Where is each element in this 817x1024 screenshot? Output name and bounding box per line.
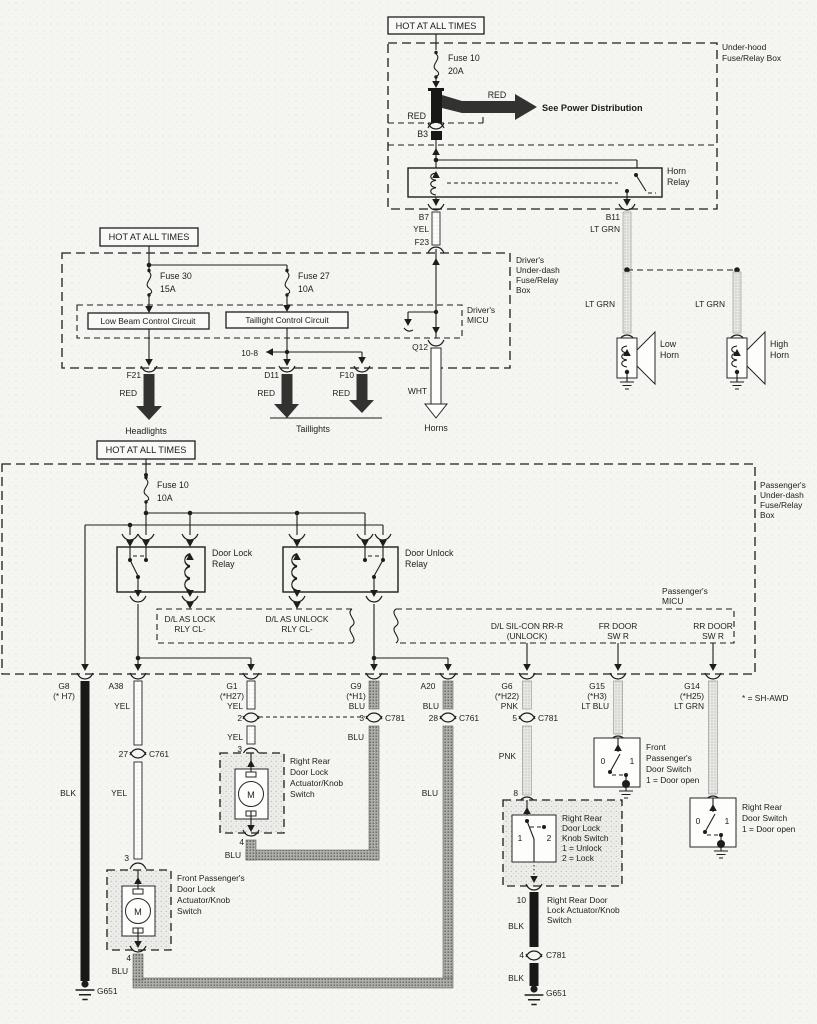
passenger-box-label-4: Box (760, 510, 775, 520)
f23-label: F23 (415, 237, 430, 247)
a20-blu-wire-2 (443, 726, 453, 978)
g14-color: LT GRN (674, 701, 704, 711)
motor-letter-front: M (134, 907, 142, 917)
passenger-box-label-2: Under-dash (760, 490, 804, 500)
g1-yel-wire-1 (247, 681, 255, 709)
fp-sw-label-3: Door Switch (646, 764, 691, 774)
blk-color-2: BLK (508, 973, 524, 983)
d11-color: RED (257, 388, 275, 398)
blk-wire-1 (530, 892, 539, 947)
fuse-27-label: Fuse 27 (298, 271, 330, 281)
driver-box-label-4: Box (516, 285, 531, 295)
fp-act-label-2: Door Lock (177, 884, 216, 894)
g15-color: LT BLU (581, 701, 609, 711)
micu-unlock-label-2: RLY CL- (281, 624, 313, 634)
headlights-label: Headlights (125, 426, 167, 436)
micu-lock-label-1: D/L AS LOCK (165, 614, 216, 624)
micu-rrdoor-label-2: SW R (702, 631, 724, 641)
g8-blk-wire (81, 681, 90, 981)
ref-10-8-label: 10-8 (241, 348, 258, 358)
knob-label-2: Door Lock (562, 823, 601, 833)
fp-sw-label-2: Passenger's (646, 753, 692, 763)
q12-label: Q12 (412, 342, 428, 352)
fp-sw-label-1: Front (646, 742, 666, 752)
rr-sw-pos1: 1 (725, 816, 730, 826)
a38-pin3: 3 (124, 853, 129, 863)
fp-sw-pos0: 0 (601, 756, 606, 766)
fp-sw-label-4: 1 = Door open (646, 775, 700, 785)
fuse-30-label: Fuse 30 (160, 271, 192, 281)
f10-color: RED (332, 388, 350, 398)
f21-label: F21 (127, 370, 142, 380)
b11-label: B11 (606, 212, 621, 222)
door-unlock-relay-label-1: Door Unlock (405, 548, 454, 558)
knob-label-3: Knob Switch (562, 833, 609, 843)
g8-name-2: (* H7) (53, 691, 75, 701)
passenger-box-label-3: Fuse/Relay (760, 500, 803, 510)
g14-name-2: (*H25) (680, 691, 704, 701)
c781-label: C781 (546, 950, 566, 960)
g6-pin5: 5 (512, 713, 517, 723)
g6-color-1: PNK (501, 701, 519, 711)
micu-frdoor-label-2: SW R (607, 631, 629, 641)
high-horn-wire-color: LT GRN (695, 299, 725, 309)
micu-rrdoor-label-1: RR DOOR (693, 621, 733, 631)
driver-micu-label-2: MICU (467, 315, 488, 325)
hot-label-1: HOT AT ALL TIMES (396, 21, 477, 31)
rr-sw-label-1: Right Rear (742, 802, 782, 812)
see-power-distribution: See Power Distribution (542, 103, 643, 113)
b3-label: B3 (417, 129, 428, 139)
passenger-micu-label-1: Passenger's (662, 586, 708, 596)
a20-elbow-stub (133, 954, 143, 980)
g9-blu-wire-1 (369, 681, 379, 709)
low-horn-wire-color: LT GRN (585, 299, 615, 309)
rr-act-label-1: Right Rear (290, 756, 330, 766)
pin10-label: 10 (517, 895, 527, 905)
fuse-10b-label: Fuse 10 (157, 480, 189, 490)
g651-label-left: G651 (97, 986, 118, 996)
rr-act2-label-1: Right Rear Door (547, 895, 608, 905)
g6-name-2: (*H22) (495, 691, 519, 701)
taillight-label: Taillight Control Circuit (245, 315, 329, 325)
motor-letter-rear: M (247, 790, 255, 800)
g8-name: G8 (58, 681, 70, 691)
taillights-label: Taillights (296, 424, 330, 434)
d11-label: D11 (264, 370, 279, 380)
g9-elbow-wire (246, 850, 379, 860)
g9-pin3: 3 (359, 713, 364, 723)
high-horn-wire (733, 272, 741, 333)
low-beam-label: Low Beam Control Circuit (101, 316, 197, 326)
g6-pin8: 8 (513, 788, 518, 798)
a20-elbow-wire (133, 978, 453, 988)
red-label-main: RED (407, 111, 426, 121)
fp-sw-pos1: 1 (630, 756, 635, 766)
fuse-27-amp: 10A (298, 284, 314, 294)
micu-silcon-label-1: D/L SIL-CON RR-R (491, 621, 563, 631)
a38-name: A38 (109, 681, 124, 691)
g8-color: BLK (60, 788, 76, 798)
door-unlock-relay-label-2: Relay (405, 559, 428, 569)
a20-color-1: BLU (423, 701, 439, 711)
fuse-30-amp: 15A (160, 284, 176, 294)
micu-lock-label-2: RLY CL- (174, 624, 206, 634)
rr-act2-label-3: Switch (547, 915, 572, 925)
fp-act-label-1: Front Passenger's (177, 873, 245, 883)
b7-color: YEL (413, 224, 429, 234)
blk-color-1: BLK (508, 921, 524, 931)
micu-silcon-label-2: (UNLOCK) (507, 631, 548, 641)
low-horn-label-2: Horn (660, 350, 679, 360)
passenger-micu-label-2: MICU (662, 596, 683, 606)
b7-label: B7 (419, 212, 430, 222)
awd-note: * = SH-AWD (742, 693, 788, 703)
g6-name: G6 (501, 681, 513, 691)
passenger-box-label-1: Passenger's (760, 480, 806, 490)
g6-c781: C781 (538, 713, 558, 723)
g14-ltgrn-wire (709, 681, 718, 794)
fp-act-pin4: 4 (126, 953, 131, 963)
high-horn-label-1: High (770, 339, 788, 349)
door-lock-relay-label-2: Relay (212, 559, 235, 569)
low-horn-wire (623, 272, 631, 333)
rr-act-label-4: Switch (290, 789, 315, 799)
g1-yel-wire-2 (247, 726, 255, 744)
driver-box-label-1: Driver's (516, 255, 544, 265)
knob-pos2: 2 (547, 833, 552, 843)
driver-micu-label-1: Driver's (467, 305, 495, 315)
g6-color-2: PNK (499, 751, 517, 761)
f21-color: RED (119, 388, 137, 398)
underhood-label-1: Under-hood (722, 42, 767, 52)
g651-label-right: G651 (546, 988, 567, 998)
rr-act-pin4: 4 (239, 837, 244, 847)
horns-output-label: Horns (424, 423, 448, 433)
g6-pnk-wire-2 (523, 726, 532, 795)
a38-c761: C761 (149, 749, 169, 759)
driver-box-label-2: Under-dash (516, 265, 560, 275)
b11-color: LT GRN (590, 224, 620, 234)
red-label-branch: RED (488, 90, 507, 100)
g9-color-1: BLU (349, 701, 365, 711)
g1-name: G1 (226, 681, 238, 691)
g9-color-2: BLU (348, 732, 364, 742)
f10-label: F10 (340, 370, 355, 380)
g9-c781: C781 (385, 713, 405, 723)
rr-sw-label-2: Door Switch (742, 813, 787, 823)
g9-name: G9 (350, 681, 362, 691)
horn-relay-label-2: Relay (667, 177, 690, 187)
g9-name-2: (*H1) (346, 691, 366, 701)
hot-label-3: HOT AT ALL TIMES (106, 445, 187, 455)
wiring-diagram: HOT AT ALL TIMES Under-hood Fuse/Relay B… (0, 0, 817, 1024)
g15-ltblu-wire (614, 681, 623, 734)
rr-act2-label-2: Lock Actuator/Knob (547, 905, 620, 915)
a38-yel-wire-2 (134, 762, 142, 859)
g15-name-2: (*H3) (587, 691, 607, 701)
rr-sw-pos0: 0 (696, 816, 701, 826)
g15-name: G15 (589, 681, 605, 691)
fuse-10-label: Fuse 10 (448, 53, 480, 63)
g9-blu-wire-2 (369, 726, 379, 860)
a20-c761: C761 (459, 713, 479, 723)
driver-box-label-3: Fuse/Relay (516, 275, 559, 285)
high-horn-label-2: Horn (770, 350, 789, 360)
a20-blu-wire-1 (443, 681, 453, 709)
g6-pnk-wire-1 (523, 681, 532, 709)
underhood-label-2: Fuse/Relay Box (722, 53, 782, 63)
fp-act-label-3: Actuator/Knob (177, 895, 230, 905)
g1-color-1: YEL (227, 701, 243, 711)
low-horn-label-1: Low (660, 339, 677, 349)
a38-color-2: YEL (111, 788, 127, 798)
fp-act-label-4: Switch (177, 906, 202, 916)
fp-act-color: BLU (112, 966, 128, 976)
g1-pin2: 2 (237, 713, 242, 723)
a38-color-1: YEL (114, 701, 130, 711)
a38-yel-wire-1 (134, 681, 142, 745)
g1-color-2: YEL (227, 732, 243, 742)
horn-relay-label-1: Horn (667, 166, 686, 176)
rr-act-label-2: Door Lock (290, 767, 329, 777)
blk-wire-2 (530, 963, 539, 986)
g14-name: G14 (684, 681, 700, 691)
wht-color: WHT (408, 386, 427, 396)
fuse-10-amp: 20A (448, 66, 464, 76)
wiring-diagram-page: HOT AT ALL TIMES Under-hood Fuse/Relay B… (0, 0, 817, 1024)
micu-frdoor-label-1: FR DOOR (599, 621, 638, 631)
a20-pin28: 28 (429, 713, 439, 723)
knob-label-4: 1 = Unlock (562, 843, 603, 853)
knob-label-5: 2 = Lock (562, 853, 595, 863)
door-lock-relay-label-1: Door Lock (212, 548, 253, 558)
g1-name-2: (*H27) (220, 691, 244, 701)
a38-pin27: 27 (119, 749, 129, 759)
knob-pos1: 1 (518, 833, 523, 843)
rr-act-color: BLU (225, 850, 241, 860)
knob-label-1: Right Rear (562, 813, 602, 823)
fuse-10b-amp: 10A (157, 493, 173, 503)
a20-name: A20 (421, 681, 436, 691)
rr-sw-label-3: 1 = Door open (742, 824, 796, 834)
rr-act-label-3: Actuator/Knob (290, 778, 343, 788)
g9-elbow-stub (246, 840, 256, 860)
pin4-label: 4 (519, 950, 524, 960)
a20-color-2: BLU (422, 788, 438, 798)
micu-unlock-label-1: D/L AS UNLOCK (266, 614, 329, 624)
hot-label-2: HOT AT ALL TIMES (109, 232, 190, 242)
